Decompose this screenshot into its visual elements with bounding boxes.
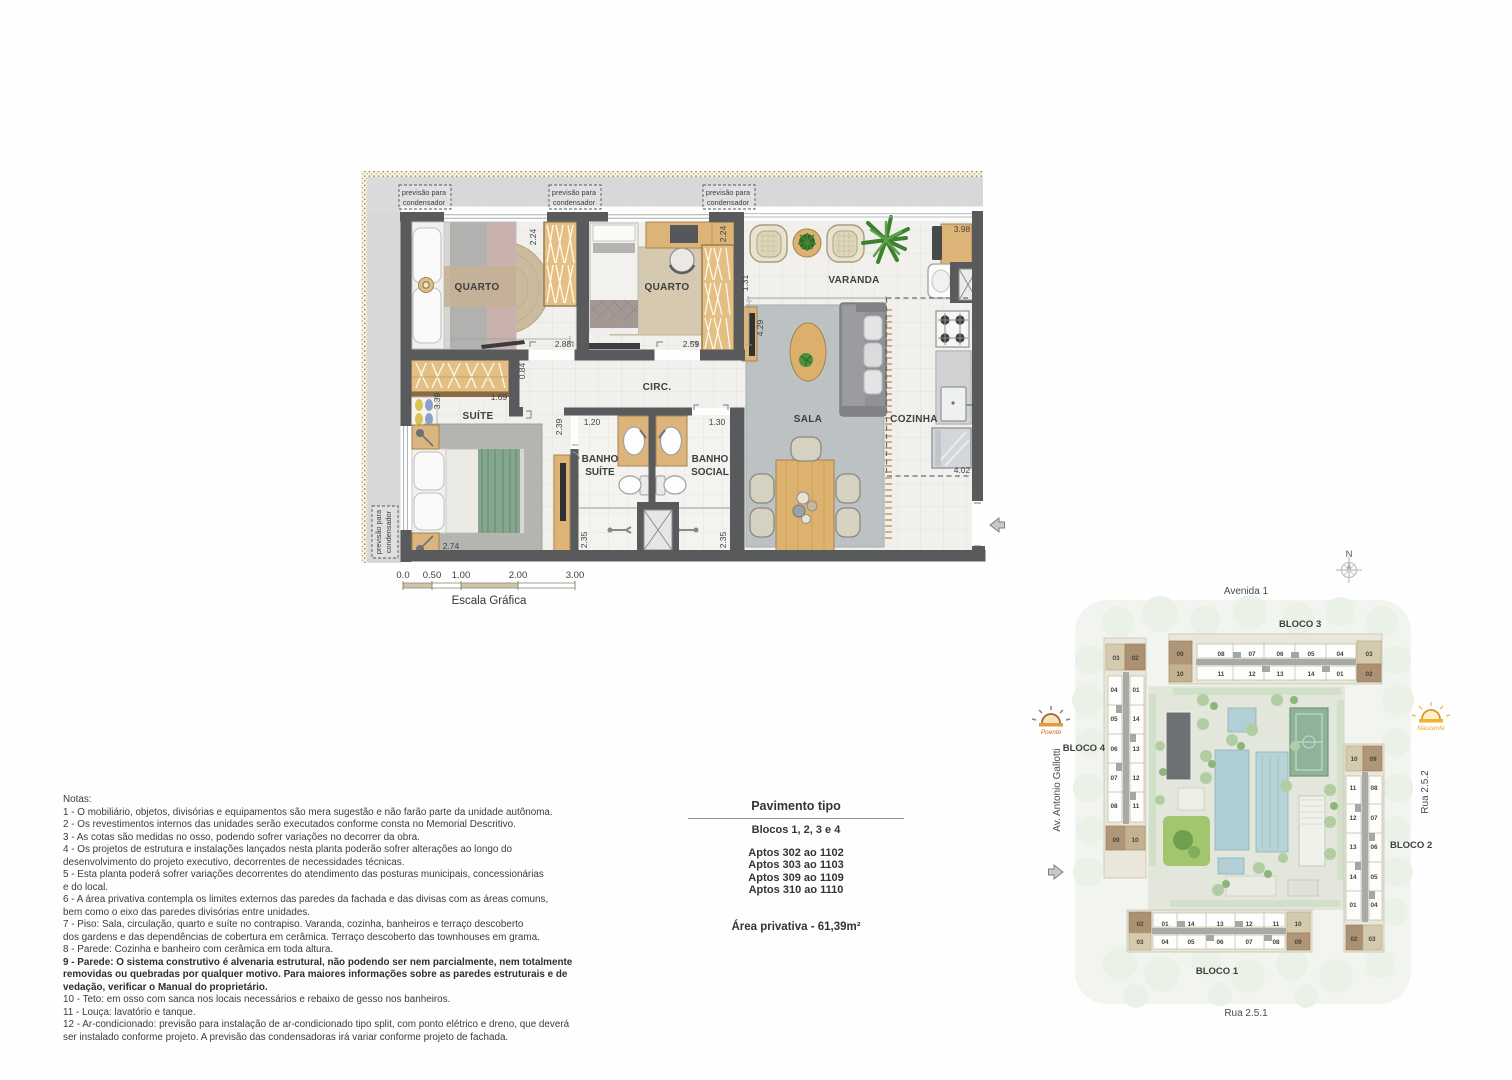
svg-text:COZINHA: COZINHA	[890, 414, 938, 425]
svg-text:CIRC.: CIRC.	[643, 382, 672, 393]
svg-text:04: 04	[1161, 939, 1169, 946]
svg-text:previsão para: previsão para	[374, 509, 383, 554]
svg-text:2.35: 2.35	[718, 531, 728, 548]
svg-text:1.20: 1.20	[584, 417, 601, 427]
svg-text:08: 08	[1217, 651, 1225, 658]
svg-text:11: 11	[1218, 671, 1225, 678]
svg-text:Nascente: Nascente	[1417, 725, 1445, 732]
svg-text:05: 05	[1370, 874, 1378, 881]
svg-text:14: 14	[1132, 716, 1140, 723]
svg-text:condensador: condensador	[707, 198, 750, 207]
svg-text:condensador: condensador	[403, 198, 446, 207]
svg-text:BANHO: BANHO	[582, 454, 619, 465]
svg-text:03: 03	[1365, 651, 1373, 658]
svg-text:3.98: 3.98	[954, 224, 971, 234]
svg-text:2.35: 2.35	[579, 531, 589, 548]
svg-text:14: 14	[1349, 874, 1357, 881]
svg-text:04: 04	[1110, 687, 1118, 694]
svg-text:06: 06	[1370, 844, 1378, 851]
svg-text:1.30: 1.30	[709, 417, 726, 427]
svg-text:2.88: 2.88	[555, 339, 572, 349]
svg-text:1.31: 1.31	[740, 274, 750, 291]
svg-text:3.39: 3.39	[432, 392, 442, 409]
svg-text:01: 01	[1349, 902, 1357, 909]
svg-text:11: 11	[1350, 785, 1357, 792]
svg-text:BLOCO 3: BLOCO 3	[1279, 619, 1321, 630]
svg-text:03: 03	[1112, 655, 1120, 662]
svg-text:05: 05	[1307, 651, 1315, 658]
svg-text:Rua 2.5.2: Rua 2.5.2	[1420, 770, 1431, 814]
svg-text:09: 09	[1294, 939, 1302, 946]
svg-text:3.00: 3.00	[566, 570, 585, 581]
svg-text:10: 10	[1176, 671, 1184, 678]
svg-text:0.84: 0.84	[517, 362, 527, 379]
svg-text:2.74: 2.74	[443, 541, 460, 551]
svg-text:05: 05	[1187, 939, 1195, 946]
svg-text:14: 14	[1187, 921, 1195, 928]
svg-text:Poente: Poente	[1041, 729, 1062, 736]
svg-text:QUARTO: QUARTO	[645, 282, 690, 293]
svg-text:06: 06	[1110, 746, 1118, 753]
svg-text:condensador: condensador	[553, 198, 596, 207]
svg-text:2.24: 2.24	[528, 228, 538, 245]
svg-text:2.39: 2.39	[554, 418, 564, 435]
svg-text:previsão para: previsão para	[552, 188, 597, 197]
svg-text:09: 09	[1176, 651, 1184, 658]
svg-text:condensador: condensador	[384, 510, 393, 553]
svg-text:03: 03	[1368, 936, 1376, 943]
svg-text:previsão para: previsão para	[706, 188, 751, 197]
svg-text:SALA: SALA	[794, 414, 822, 425]
svg-text:03: 03	[1136, 939, 1144, 946]
svg-text:Rua 2.5.1: Rua 2.5.1	[1224, 1008, 1268, 1019]
svg-text:12: 12	[1245, 921, 1253, 928]
svg-text:0.0: 0.0	[396, 570, 409, 581]
svg-text:10: 10	[1350, 756, 1358, 763]
svg-text:02: 02	[1131, 655, 1139, 662]
svg-text:2.59: 2.59	[683, 339, 700, 349]
svg-text:SOCIAL: SOCIAL	[691, 467, 729, 478]
svg-text:07: 07	[1245, 939, 1253, 946]
svg-text:06: 06	[1276, 651, 1284, 658]
svg-text:13: 13	[1132, 746, 1140, 753]
svg-text:12: 12	[1349, 815, 1357, 822]
svg-text:QUARTO: QUARTO	[455, 282, 500, 293]
svg-text:04: 04	[1336, 651, 1344, 658]
svg-text:01: 01	[1132, 687, 1140, 694]
svg-text:07: 07	[1248, 651, 1256, 658]
svg-text:10: 10	[1294, 921, 1302, 928]
svg-text:Avenida 1: Avenida 1	[1224, 586, 1269, 597]
svg-text:10: 10	[1131, 837, 1139, 844]
svg-text:BLOCO 1: BLOCO 1	[1196, 966, 1239, 977]
svg-text:VARANDA: VARANDA	[828, 275, 879, 286]
svg-text:Escala Gráfica: Escala Gráfica	[452, 595, 527, 607]
svg-text:11: 11	[1133, 803, 1140, 810]
svg-text:13: 13	[1349, 844, 1357, 851]
svg-text:previsão para: previsão para	[402, 188, 447, 197]
svg-text:BLOCO 4: BLOCO 4	[1063, 743, 1106, 754]
svg-text:12: 12	[1132, 775, 1140, 782]
svg-text:01: 01	[1336, 671, 1344, 678]
svg-text:09: 09	[1369, 756, 1377, 763]
svg-text:07: 07	[1110, 775, 1118, 782]
svg-text:0.50: 0.50	[423, 570, 442, 581]
svg-text:13: 13	[1216, 921, 1224, 928]
svg-text:11: 11	[1273, 921, 1280, 928]
svg-text:4.29: 4.29	[755, 319, 765, 336]
svg-text:01: 01	[1161, 921, 1169, 928]
svg-text:Av. Antonio Gallotti: Av. Antonio Gallotti	[1052, 748, 1063, 832]
svg-text:09: 09	[1112, 837, 1120, 844]
svg-text:05: 05	[1110, 716, 1118, 723]
svg-text:02: 02	[1365, 671, 1373, 678]
svg-text:02: 02	[1350, 936, 1358, 943]
svg-text:BANHO: BANHO	[692, 454, 729, 465]
svg-text:BLOCO 2: BLOCO 2	[1390, 840, 1432, 851]
svg-text:14: 14	[1307, 671, 1315, 678]
svg-text:2.24: 2.24	[718, 225, 728, 242]
svg-text:04: 04	[1370, 902, 1378, 909]
svg-text:07: 07	[1370, 815, 1378, 822]
svg-text:06: 06	[1216, 939, 1224, 946]
svg-text:SUÍTE: SUÍTE	[585, 465, 615, 478]
svg-text:12: 12	[1248, 671, 1256, 678]
svg-text:1.00: 1.00	[452, 570, 471, 581]
svg-text:08: 08	[1370, 785, 1378, 792]
svg-text:08: 08	[1272, 939, 1280, 946]
svg-text:02: 02	[1136, 921, 1144, 928]
svg-text:2.00: 2.00	[509, 570, 528, 581]
svg-text:4.02: 4.02	[954, 465, 971, 475]
svg-text:SUÍTE: SUÍTE	[463, 409, 494, 422]
svg-text:1.69: 1.69	[491, 392, 508, 402]
svg-text:08: 08	[1110, 803, 1118, 810]
svg-text:13: 13	[1276, 671, 1284, 678]
